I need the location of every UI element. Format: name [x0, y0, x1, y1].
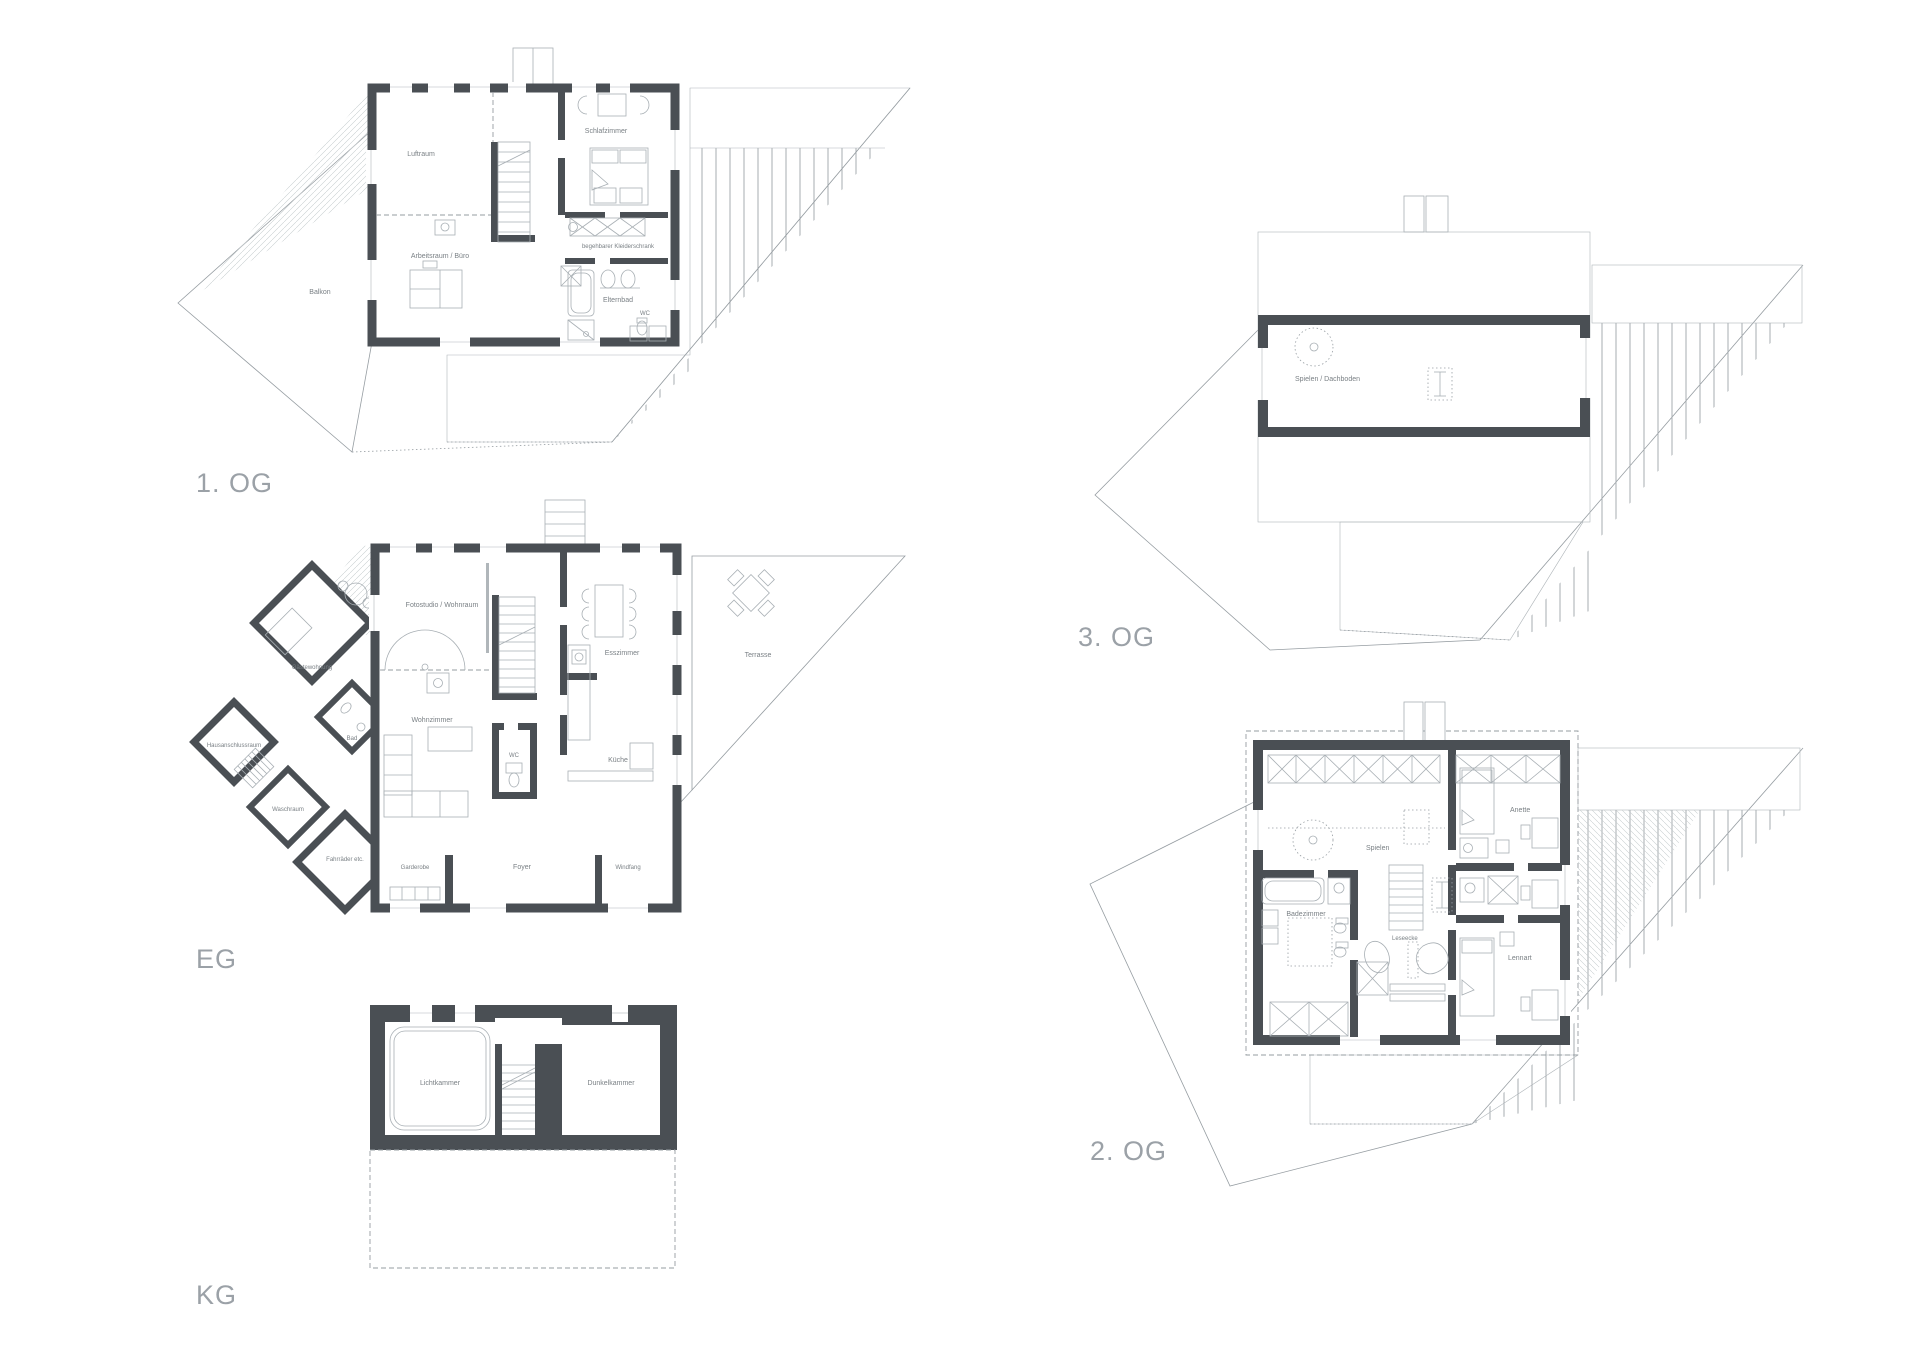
room-label-waschraum: Waschraum [272, 807, 304, 813]
room-label-hausanschlussraum: Hausanschlussraum [207, 743, 261, 749]
floor-label-3og: 3. OG [1078, 622, 1155, 653]
room-label-foyer: Foyer [513, 864, 532, 871]
roof-band-2og [1578, 748, 1800, 810]
room-label-wc-eg: WC [509, 753, 520, 759]
room-label-arbeitsraum: Arbeitsraum / Büro [411, 253, 469, 260]
floor-plan-sheet: Luftraum Schlafzimmer Arbeitsraum / Büro… [0, 0, 1920, 1358]
room-label-garderobe: Garderobe [401, 865, 430, 871]
floor-label-kg: KG [196, 1280, 237, 1311]
floor-label-2og: 2. OG [1090, 1136, 1167, 1167]
room-label-dunkelkammer: Dunkelkammer [587, 1080, 635, 1087]
room-label-fotostudio: Fotostudio / Wohnraum [406, 602, 479, 609]
room-label-lichtkammer: Lichtkammer [420, 1080, 461, 1087]
floor-label-eg: EG [196, 944, 237, 975]
chimney-2og [1404, 702, 1445, 745]
floor-plan-1og: Luftraum Schlafzimmer Arbeitsraum / Büro… [140, 30, 940, 470]
room-label-luftraum: Luftraum [407, 151, 435, 158]
room-label-gaestewohnung: Gästewohnung [292, 665, 332, 671]
chimney-3og [1404, 196, 1448, 232]
sliding-wall [486, 563, 489, 653]
room-label-terrasse: Terrasse [745, 652, 772, 659]
room-label-badezimmer: Badezimmer [1286, 911, 1326, 918]
room-label-leseecke: Leseecke [1392, 936, 1418, 942]
wing-hausanschlussraum [194, 702, 274, 782]
exterior-stair-eg [545, 500, 585, 548]
room-label-fahrraeder: Fahrräder etc. [326, 857, 364, 863]
room-label-kleiderschrank: begehbarer Kleiderschrank [582, 244, 655, 250]
room-label-spielen: Spielen [1366, 845, 1389, 852]
room-label-anette: Anette [1510, 807, 1530, 814]
building-2og [1258, 745, 1565, 1040]
roof-sliver-hatch [200, 90, 370, 292]
room-label-kueche: Küche [608, 757, 628, 764]
roof-band-3og [1592, 265, 1802, 323]
room-label-bad: Bad [347, 736, 358, 742]
terrace-area [692, 556, 905, 790]
floor-plan-3og: Spielen / Dachboden [1040, 180, 1840, 680]
footprint-dashed-kg [370, 1150, 675, 1268]
room-label-balkon: Balkon [309, 289, 331, 296]
room-label-wohnzimmer: Wohnzimmer [411, 717, 453, 724]
floor-plan-kg: Lichtkammer Dunkelkammer [350, 990, 710, 1290]
room-label-spielen-dachboden: Spielen / Dachboden [1295, 376, 1360, 383]
terrace-table [714, 556, 788, 630]
floor-plan-eg: Fotostudio / Wohnraum Wohnzimmer Esszimm… [140, 495, 960, 945]
floor-label-1og: 1. OG [196, 468, 273, 499]
room-label-elternbad: Elternbad [603, 297, 633, 304]
room-label-windfang: Windfang [615, 865, 640, 871]
room-label-wc-1og: WC [640, 311, 651, 317]
room-label-lennart: Lennart [1508, 955, 1532, 962]
room-label-schlafzimmer: Schlafzimmer [585, 128, 628, 135]
room-label-esszimmer: Esszimmer [605, 650, 640, 657]
